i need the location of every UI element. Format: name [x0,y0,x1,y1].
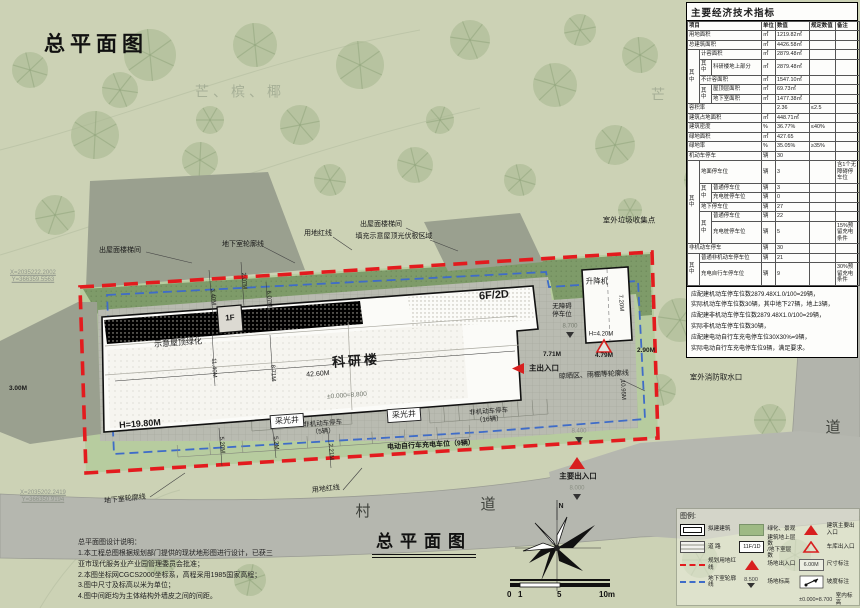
indicator-cell [836,142,860,151]
legend-label-indoor-elevation: 室内标高 [836,593,856,605]
indicator-row: 建筑密度%36.77%≤40% [688,123,860,132]
indicator-row: 其中屋顶层面积㎡69.73㎡ [688,85,860,94]
legend-swatch-greening-icon [739,524,764,536]
basement-outline-top: 地下室轮廓线 [222,241,264,249]
indicator-cell: 30%预留充电条件 [836,263,860,285]
indicator-row: 机动车停车辆30 [688,151,860,160]
design-note-line: 亚市现代服务业产业园管理委员会批准； [78,560,363,571]
legend-columns: 拟建建筑道 路规划用地红线地下室轮廓线 绿化、景观11F/1D建筑地上层数 /地… [680,522,856,607]
legend-label-garage-entrance: 车库出入口 [827,544,855,550]
tree-cluster [450,20,490,60]
scale-label-1: 1 [518,590,522,599]
indicator-cell: 规定数值 [810,22,836,31]
indicator-cell: 其中 [700,59,712,75]
indicator-row: 绿地面积㎡427.65 [688,132,860,141]
indicator-cell: 不计容面积 [700,75,762,84]
table-note-line: 应配建非机动车停车位数2879.48X1.0/100=29辆， [691,311,853,322]
legend-swatch-indoor-elevation-icon: ±0.000=8.700 [799,594,833,606]
indicator-cell [810,94,836,103]
indicator-row: 其中普通停车位辆22 [688,212,860,221]
indicator-cell [836,75,860,84]
indicator-cell: 辆 [762,183,776,192]
lightwell-2: 采光井 [387,407,422,423]
indicator-cell [810,212,836,221]
road-name-right-2: 道 [825,419,840,437]
watermark-mang: 芒 [651,87,665,104]
legend-item-floor-count: 11F/1D建筑地上层数 /地下室层数 [739,540,796,555]
legend-item-proposed-building: 拟建建筑 [680,522,737,537]
indicator-cell: 辆 [762,263,776,285]
scale-bar: 0 1 5 10m [506,578,622,604]
indicator-row: 项目单位数值规定数值备注 [688,22,860,31]
indicator-cell: 绿地率 [688,142,762,151]
indicator-cell [836,59,860,75]
indicator-cell: 1547.10㎡ [776,75,810,84]
indicator-cell: 其中 [688,253,700,285]
indicator-cell: ≥35% [810,142,836,151]
legend-item-basement-outline: 地下室轮廓线 [680,575,737,590]
building-name: 科研楼 [332,352,381,371]
legend-label-proposed-building: 拟建建筑 [708,526,730,532]
indicator-cell: ㎡ [762,94,776,103]
indicator-cell [810,113,836,122]
indicator-cell: 27 [776,202,810,211]
legend-label-site-entrance: 场地出入口 [767,561,795,567]
road-name-bottom-1: 村 [355,503,370,521]
indicator-cell [836,31,860,40]
indicator-cell: 机动车停车 [688,151,762,160]
indicator-row: 其中科研楼地上部分㎡2879.48㎡ [688,59,860,75]
indicator-row: 其中普通停车位辆3 [688,183,860,192]
tree-cluster [533,63,577,107]
roof-stair-shape-1 [86,172,305,288]
indicator-cell: 15%预留充电条件 [836,221,860,243]
indicator-cell [836,104,860,113]
legend-label-building-main-entrance: 建筑主要出入口 [827,523,856,535]
indicator-cell [810,59,836,75]
legend-swatch-planning-red-line-icon [680,564,705,566]
lift-label: 升降机 [586,277,609,286]
scale-label-5: 5 [557,590,561,599]
elev-8000: 8.000 [569,485,584,492]
tree-cluster [622,37,658,73]
indicator-cell: ㎡ [762,31,776,40]
legend-swatch-proposed-building-icon [680,524,705,536]
indicator-cell: 其中 [700,183,712,202]
elev-8700: 8.700 [562,323,577,330]
main-exit-label: 主要出入口 [559,472,597,481]
table-notes: 应配建机动车停车位数2879.48X1.0/100=29辆，实际机动车停车位数3… [687,286,857,358]
indicator-cell: 用地面积 [688,31,762,40]
table-note-line: 实际非机动车停车位数30辆， [691,322,853,333]
indicator-cell: 448.71㎡ [776,113,810,122]
legend-title: 图例: [680,511,856,521]
table-note-line: 实际机动车停车位数30辆，其中地下27辆，地上3辆， [691,300,853,311]
indicator-cell [836,132,860,141]
dim-2-90m: 2.90M [637,347,655,355]
tree-cluster [196,106,224,134]
indicator-cell: ㎡ [762,40,776,49]
garbage-point: 室外垃圾收集点 [603,216,656,225]
indicator-cell [810,202,836,211]
dim-5-20m-a: 5.20M [217,436,226,453]
page-title: 总平面图 [44,28,148,58]
indicator-cell: % [762,142,776,151]
indicator-cell: 辆 [762,244,776,253]
dim-7-71m: 7.71M [543,351,561,359]
indicator-cell: 充电桩停车位 [712,221,762,243]
indicator-cell: 5 [776,221,810,243]
indicators-panel: 主要经济技术指标 项目单位数值规定数值备注用地面积㎡1219.82㎡总建筑面积㎡… [686,2,858,358]
legend-swatch-building-main-entrance-icon [799,524,824,536]
scale-label-10: 10m [599,590,615,599]
main-entrance-label: 主出入口 [529,364,559,373]
indicator-cell: 屋顶层面积 [712,85,762,94]
indicator-cell [810,263,836,285]
indicator-cell [810,244,836,253]
indicator-cell: 计容面积 [700,50,762,59]
watermark-trees: 芒、槟、椰 [195,84,285,101]
legend-swatch-floor-count-icon: 11F/1D [739,541,764,553]
indicator-cell: 数值 [776,22,810,31]
indicator-cell: 辆 [762,151,776,160]
tree-cluster [102,72,138,108]
indicator-cell: 其中 [700,85,712,104]
legend-item-slope: 坡度标注 [799,575,856,590]
indicator-cell: 9 [776,263,810,285]
indicator-cell: 2879.48㎡ [776,50,810,59]
indicator-row: 地下室面积㎡1477.38㎡ [688,94,860,103]
indicator-cell: ㎡ [762,59,776,75]
indicator-cell: 1477.38㎡ [776,94,810,103]
legend-swatch-basement-outline-icon [680,581,705,583]
tree-cluster [595,125,635,165]
indicator-cell: 427.65 [776,132,810,141]
design-note-line: 2.本图坐标网CGCS2000坐标系，高程采用1985国家高程； [78,571,363,582]
indicator-cell [810,161,836,183]
indicator-row: 充电桩停车位辆0 [688,193,860,202]
dim-7-20m: 7.20M [616,294,624,311]
table-note-line: 应配建机动车停车位数2879.48X1.0/100=29辆， [691,290,853,301]
table-note-line: 实际电动自行车充电停车位9辆，满足要求。 [691,344,853,355]
legend-panel: 图例: 拟建建筑道 路规划用地红线地下室轮廓线 绿化、景观11F/1D建筑地上层… [676,508,860,606]
dim-2-21m: 2.21M [326,443,335,460]
legend-item-road: 道 路 [680,540,737,555]
indicator-row: 容积率2.36≤2.5 [688,104,860,113]
dim-6-07m: 6.07M [264,290,273,307]
indicator-row: 其中计容面积㎡2879.48㎡ [688,50,860,59]
legend-label-dimension: 尺寸标注 [827,561,849,567]
design-note-line: 3.图中尺寸及标高以米为单位； [78,581,363,592]
tree-cluster [35,195,75,235]
tree-cluster [504,164,536,196]
indicator-cell [810,50,836,59]
indicator-row: 总建筑面积㎡4426.58㎡ [688,40,860,49]
indicator-cell: ㎡ [762,75,776,84]
tree-cluster [397,147,433,183]
design-note-line: 4.图中间距均为主体结构外墙皮之间的间距。 [78,592,363,603]
indicator-cell: 单位 [762,22,776,31]
dim-3-00m: 3.00M [9,385,27,393]
indicator-cell: 建筑占地面积 [688,113,762,122]
indicator-row: 充电自行车停车位辆930%预留充电条件 [688,263,860,285]
elev-8400: 8.400 [571,428,586,435]
indicator-cell [836,94,860,103]
floors-1f: 1F [225,313,235,323]
indicator-cell: 项目 [688,22,762,31]
indicator-cell: 辆 [762,253,776,262]
indicator-cell: 科研楼地上部分 [712,59,762,75]
coord-left: X=2035222.2002 Y=366359.5563 [10,270,56,284]
indicator-cell: 普通停车位 [712,183,762,192]
indicator-cell [836,193,860,202]
indicator-cell: ≤2.5 [810,104,836,113]
indicator-cell: 辆 [762,161,776,183]
indicator-cell: 30 [776,244,810,253]
indicator-cell [810,75,836,84]
legend-label-planning-red-line: 规划用地红线 [708,558,737,570]
legend-item-indoor-elevation: ±0.000=8.700室内标高 [799,592,856,607]
tree-cluster [280,105,320,145]
tree-cluster [426,106,454,134]
indicator-cell: 4426.58㎡ [776,40,810,49]
indicator-cell: 2879.48㎡ [776,59,810,75]
legend-label-site-elevation: 场地标高 [767,579,789,585]
indicator-cell: 地下停车位 [700,202,762,211]
dim-5-20m-b: 5.2M [271,436,279,450]
indicator-cell: 非机动车停车 [688,244,762,253]
indicator-cell [836,253,860,262]
indicator-cell: ≤40% [810,123,836,132]
indicator-cell [836,113,860,122]
indicator-cell: 36.77% [776,123,810,132]
indicator-cell [810,85,836,94]
fire-hydrant: 室外消防取水口 [690,373,743,382]
indicator-cell: 地下室面积 [712,94,762,103]
indicator-cell: % [762,123,776,132]
indicator-cell [836,151,860,160]
legend-column-3: 建筑主要出入口车库出入口6.00M尺寸标注坡度标注±0.000=8.700室内标… [799,522,856,607]
indicator-cell: 1219.82㎡ [776,31,810,40]
indicator-cell [810,183,836,192]
indicator-cell: 充电自行车停车位 [700,263,762,285]
indicator-cell: ㎡ [762,50,776,59]
design-notes-lines: 1.本工程总图根据规划部门提供的现状地形图进行设计，已获三亚市现代服务业产业园管… [78,549,363,603]
indicator-row: 地下停车位辆27 [688,202,860,211]
indicator-cell: 3 [776,183,810,192]
indicator-cell [836,183,860,192]
indicator-cell: 22 [776,212,810,221]
indicator-cell: 辆 [762,221,776,243]
red-line-top: 用地红线 [304,230,332,238]
legend-item-planning-red-line: 规划用地红线 [680,557,737,572]
indicator-row: 其中地面停车位辆3含1个无障碍停车位 [688,161,860,183]
indicator-cell: 地面停车位 [700,161,762,183]
legend-item-garage-entrance: 车库出入口 [799,540,856,555]
legend-item-site-elevation: 8.500场地标高 [739,575,796,590]
indicator-row: 非机动车停车辆30 [688,244,860,253]
accessible-parking: 无障碍 停车位 [552,303,572,319]
bike-parking-16: 非机动车停车 （16辆） [469,407,509,425]
indicator-cell: 普通非机动车停车位 [700,253,762,262]
dim-4-79m: 4.79M [595,352,613,360]
indicator-cell [810,151,836,160]
indicator-cell: 2.36 [776,104,810,113]
legend-item-building-main-entrance: 建筑主要出入口 [799,522,856,537]
tree-cluster [754,404,786,436]
indicator-row: 绿地率%35.05%≥35% [688,142,860,151]
indicator-cell: 备注 [836,22,860,31]
indicator-row: 建筑占地面积㎡448.71㎡ [688,113,860,122]
dim-42-60m: 42.60M [306,370,330,380]
svg-text:8.500: 8.500 [744,577,758,583]
roof-stair-2: 出屋面楼梯间 [360,221,402,229]
legend-column-1: 拟建建筑道 路规划用地红线地下室轮廓线 [680,522,737,607]
indicator-cell: 充电桩停车位 [712,193,762,202]
tree-cluster [564,14,596,46]
design-note-line: 1.本工程总图根据规划部门提供的现状地形图进行设计，已获三 [78,549,363,560]
legend-label-basement-outline: 地下室轮廓线 [708,576,737,588]
legend-label-greening: 绿化、景观 [767,526,795,532]
indicator-row: 不计容面积㎡1547.10㎡ [688,75,860,84]
tree-cluster [182,142,218,178]
dim-3-40m: 3.40M [208,288,217,305]
legend-swatch-garage-entrance-icon [799,541,824,553]
indicator-cell [810,31,836,40]
indicators-title: 主要经济技术指标 [687,3,857,21]
indicator-cell: 0 [776,193,810,202]
floors-6f2d: 6F/2D [479,288,510,303]
dim-10-95m: 10.95M [618,380,626,400]
design-notes-title: 总平面图设计说明： [78,538,363,549]
dim-11-40m: 11.40M [209,358,217,378]
tree-cluster [12,52,48,88]
lightwell-1: 采光井 [270,413,305,429]
indicator-cell [836,123,860,132]
legend-column-2: 绿化、景观11F/1D建筑地上层数 /地下室层数场地出入口8.500场地标高 [739,522,796,607]
indicator-cell: 21 [776,253,810,262]
tree-cluster [71,111,119,159]
height-lift: H=4.20M [589,331,614,338]
indicator-cell: 辆 [762,212,776,221]
indicator-cell: 建筑密度 [688,123,762,132]
roof-stair-1: 出屋面楼梯间 [99,247,141,255]
dim-2-07m: 2.07M [239,272,248,289]
site-plan-page: 科研楼42.60M±0.000=8.800H=19.80M1F6F/2D示意屋顶… [0,0,860,608]
legend-swatch-dimension-icon: 6.00M [799,559,824,571]
indicator-cell: 辆 [762,193,776,202]
dim-8-71m: 8.71M [268,364,276,381]
indicator-cell: 35.05% [776,142,810,151]
bike-parking-5: 非机动车停车 （5辆） [303,419,343,437]
indicators-table: 项目单位数值规定数值备注用地面积㎡1219.82㎡总建筑面积㎡4426.58㎡其… [687,21,860,286]
coord-bottom: X=2035202.2419 Y=366350.9194 [20,490,66,504]
indicator-cell: 辆 [762,202,776,211]
indicator-cell [836,212,860,221]
scale-label-0: 0 [507,590,511,599]
road-name-bottom-2: 道 [480,496,495,514]
indicator-cell: 3 [776,161,810,183]
indicator-cell: ㎡ [762,85,776,94]
indicator-cell: 69.73㎡ [776,85,810,94]
indicator-cell [836,202,860,211]
indicator-cell: 绿地面积 [688,132,762,141]
indicator-cell [762,104,776,113]
legend-swatch-slope-icon [799,576,824,588]
indicator-row: 用地面积㎡1219.82㎡ [688,31,860,40]
indicator-cell: 其中 [688,161,700,244]
indicator-cell [836,244,860,253]
indicator-row: 其中普通非机动车停车位辆21 [688,253,860,262]
tree-cluster [233,23,277,67]
indicator-cell [810,193,836,202]
tree-cluster [336,41,384,89]
indicator-cell [836,50,860,59]
indicator-cell: 总建筑面积 [688,40,762,49]
legend-item-dimension: 6.00M尺寸标注 [799,557,856,572]
indicator-cell [810,221,836,243]
indicator-cell: 其中 [700,212,712,244]
tree-cluster [314,164,346,196]
table-note-line: 应配建电动自行车充电停车位30X30%=9辆， [691,333,853,344]
pv-area: 填充示意屋顶光伏板区域 [356,233,433,241]
indicator-cell [836,85,860,94]
design-notes: 总平面图设计说明： 1.本工程总图根据规划部门提供的现状地形图进行设计，已获三亚… [78,538,363,603]
west-paving-wedge [0,302,101,444]
legend-item-site-entrance: 场地出入口 [739,557,796,572]
indicator-cell: 30 [776,151,810,160]
legend-swatch-road-icon [680,541,705,553]
indicator-cell [810,132,836,141]
legend-swatch-site-elevation-icon: 8.500 [739,576,764,588]
indicator-row: 充电桩停车位辆515%预留充电条件 [688,221,860,243]
indicator-cell [836,40,860,49]
legend-swatch-site-entrance-icon [739,559,764,571]
legend-label-floor-count: 建筑地上层数 /地下室层数 [767,535,796,560]
north-letter: N [558,503,563,511]
indicator-cell: 含1个无障碍停车位 [836,161,860,183]
drawing-title: 总平面图 [372,527,476,558]
indicator-cell: 普通停车位 [712,212,762,221]
indicator-cell: 其中 [688,50,700,104]
legend-label-slope: 坡度标注 [827,579,849,585]
indicator-cell: ㎡ [762,132,776,141]
legend-label-road: 道 路 [708,544,721,550]
indicator-cell: ㎡ [762,113,776,122]
indicator-cell [810,40,836,49]
indicator-cell [810,253,836,262]
indicator-cell: 容积率 [688,104,762,113]
